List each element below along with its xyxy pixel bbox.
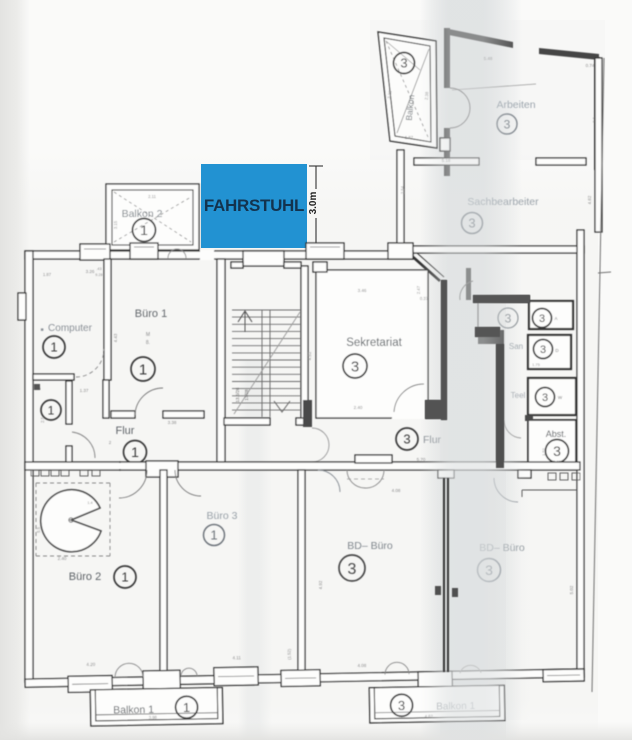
svg-text:Abst.: Abst. [546,429,567,439]
svg-text:(1.52): (1.52) [287,648,292,660]
svg-text:9.28: 9.28 [95,273,102,277]
svg-text:1.37: 1.37 [80,388,89,393]
svg-text:8.: 8. [146,340,150,346]
svg-text:4.11: 4.11 [232,655,241,660]
svg-text:3: 3 [400,56,407,71]
svg-text:2.54: 2.54 [400,185,405,194]
svg-text:3: 3 [542,392,548,404]
svg-text:2.11: 2.11 [148,194,157,199]
svg-text:3.98: 3.98 [149,715,158,720]
svg-text:Flur: Flur [116,425,135,437]
svg-text:■: ■ [40,327,43,333]
svg-text:1: 1 [50,340,57,355]
svg-text:3.38: 3.38 [168,420,177,425]
svg-text:2.40: 2.40 [58,556,67,561]
svg-text:3: 3 [539,313,545,325]
svg-text:5.02: 5.02 [569,585,574,594]
svg-text:1.87: 1.87 [43,272,52,277]
svg-text:2.40: 2.40 [354,405,363,410]
svg-text:3: 3 [351,358,359,375]
svg-text:3.15: 3.15 [113,220,118,229]
svg-text:3.46: 3.46 [358,288,367,293]
svg-text:BD– Büro: BD– Büro [347,540,393,552]
svg-text:3: 3 [403,432,410,447]
svg-text:A: A [554,316,557,321]
svg-text:3: 3 [540,344,546,356]
svg-text:4.92: 4.92 [318,580,323,589]
svg-text:1: 1 [210,528,217,543]
svg-text:1: 1 [121,570,128,585]
svg-text:13.5/26: 13.5/26 [235,387,240,403]
svg-text:Büro 3: Büro 3 [207,510,238,522]
svg-text:4.62: 4.62 [587,195,592,204]
svg-text:1: 1 [183,700,191,715]
svg-text:3.0m: 3.0m [308,191,319,214]
svg-text:3: 3 [398,698,406,713]
svg-text:1: 1 [140,222,148,238]
svg-text:Computer: Computer [48,323,93,334]
svg-text:1: 1 [139,361,147,378]
svg-text:FAHRSTUHL: FAHRSTUHL [204,196,304,215]
svg-text:4.08: 4.08 [392,488,401,493]
svg-text:5.5: 5.5 [36,526,41,532]
svg-text:1: 1 [48,403,55,417]
svg-text:1.87: 1.87 [405,135,414,140]
svg-text:4.43: 4.43 [113,333,118,342]
svg-text:1.75: 1.75 [532,362,541,367]
svg-text:1.52: 1.52 [541,447,546,456]
svg-text:2.5: 2.5 [40,416,45,422]
svg-text:.43: .43 [96,267,101,271]
svg-text:3.26: 3.26 [86,269,95,274]
svg-text:Büro 1: Büro 1 [135,308,167,320]
svg-text:1.4: 1.4 [87,501,92,505]
svg-text:1: 1 [131,444,139,460]
svg-text:3: 3 [348,561,357,578]
svg-text:4.52: 4.52 [307,351,312,360]
svg-text:M: M [146,332,150,338]
svg-text:Büro 2: Büro 2 [69,571,101,583]
svg-text:0.74: 0.74 [586,63,595,68]
svg-text:4.20: 4.20 [86,662,95,667]
svg-text:3: 3 [553,443,561,459]
svg-text:4.08: 4.08 [357,663,366,668]
svg-text:17/28: 17/28 [244,389,249,401]
svg-text:Sekretariat: Sekretariat [346,337,402,349]
